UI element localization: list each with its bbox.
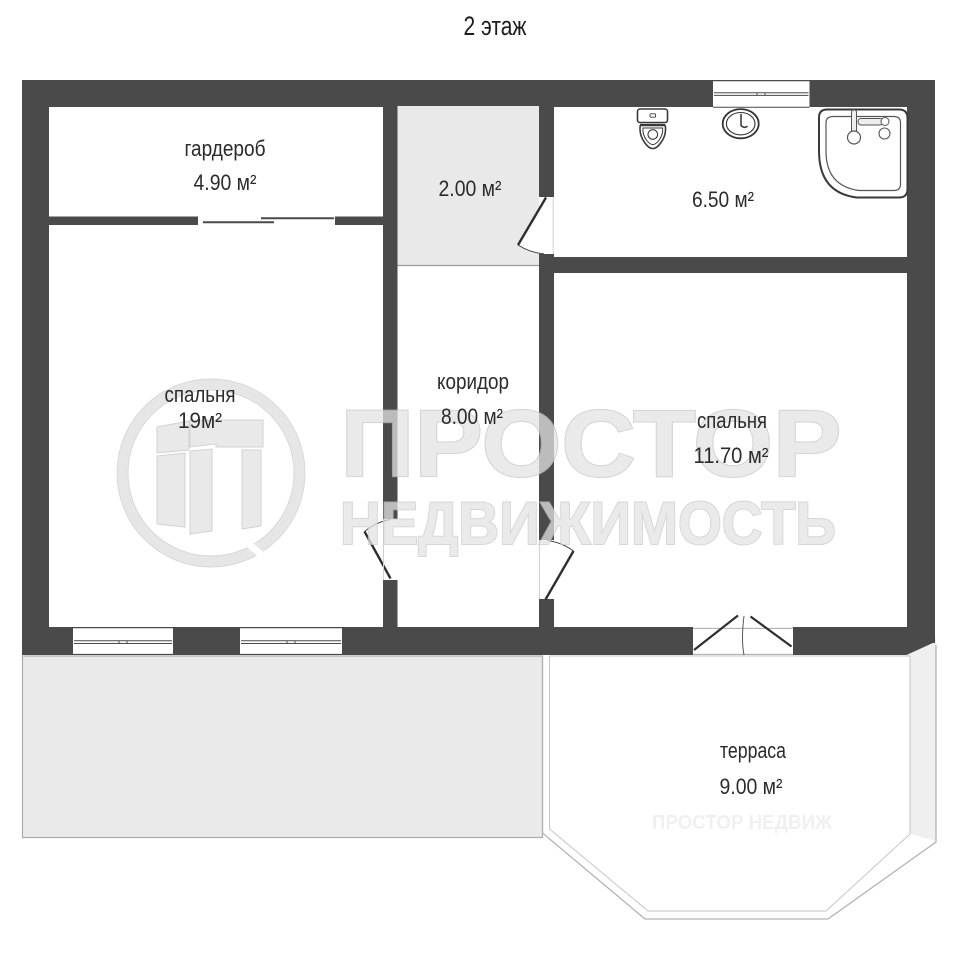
svg-text:ПРОСТОР НЕДВИЖ: ПРОСТОР НЕДВИЖ: [652, 812, 833, 834]
svg-text:терраса: терраса: [720, 738, 787, 763]
svg-text:8.00 м²: 8.00 м²: [441, 404, 503, 429]
svg-text:11.70 м²: 11.70 м²: [694, 443, 769, 468]
svg-text:2 этаж: 2 этаж: [464, 11, 527, 41]
svg-text:коридор: коридор: [437, 369, 509, 394]
svg-text:спальня: спальня: [697, 408, 767, 433]
svg-text:19м²: 19м²: [178, 408, 222, 433]
svg-text:гардероб: гардероб: [185, 136, 266, 161]
svg-text:9.00 м²: 9.00 м²: [720, 774, 783, 799]
svg-text:2.00 м²: 2.00 м²: [439, 176, 502, 201]
svg-text:НЕДВИЖИМОСТЬ: НЕДВИЖИМОСТЬ: [340, 490, 836, 557]
svg-text:6.50 м²: 6.50 м²: [692, 187, 754, 212]
svg-text:спальня: спальня: [165, 382, 236, 407]
svg-text:4.90 м²: 4.90 м²: [194, 170, 257, 195]
